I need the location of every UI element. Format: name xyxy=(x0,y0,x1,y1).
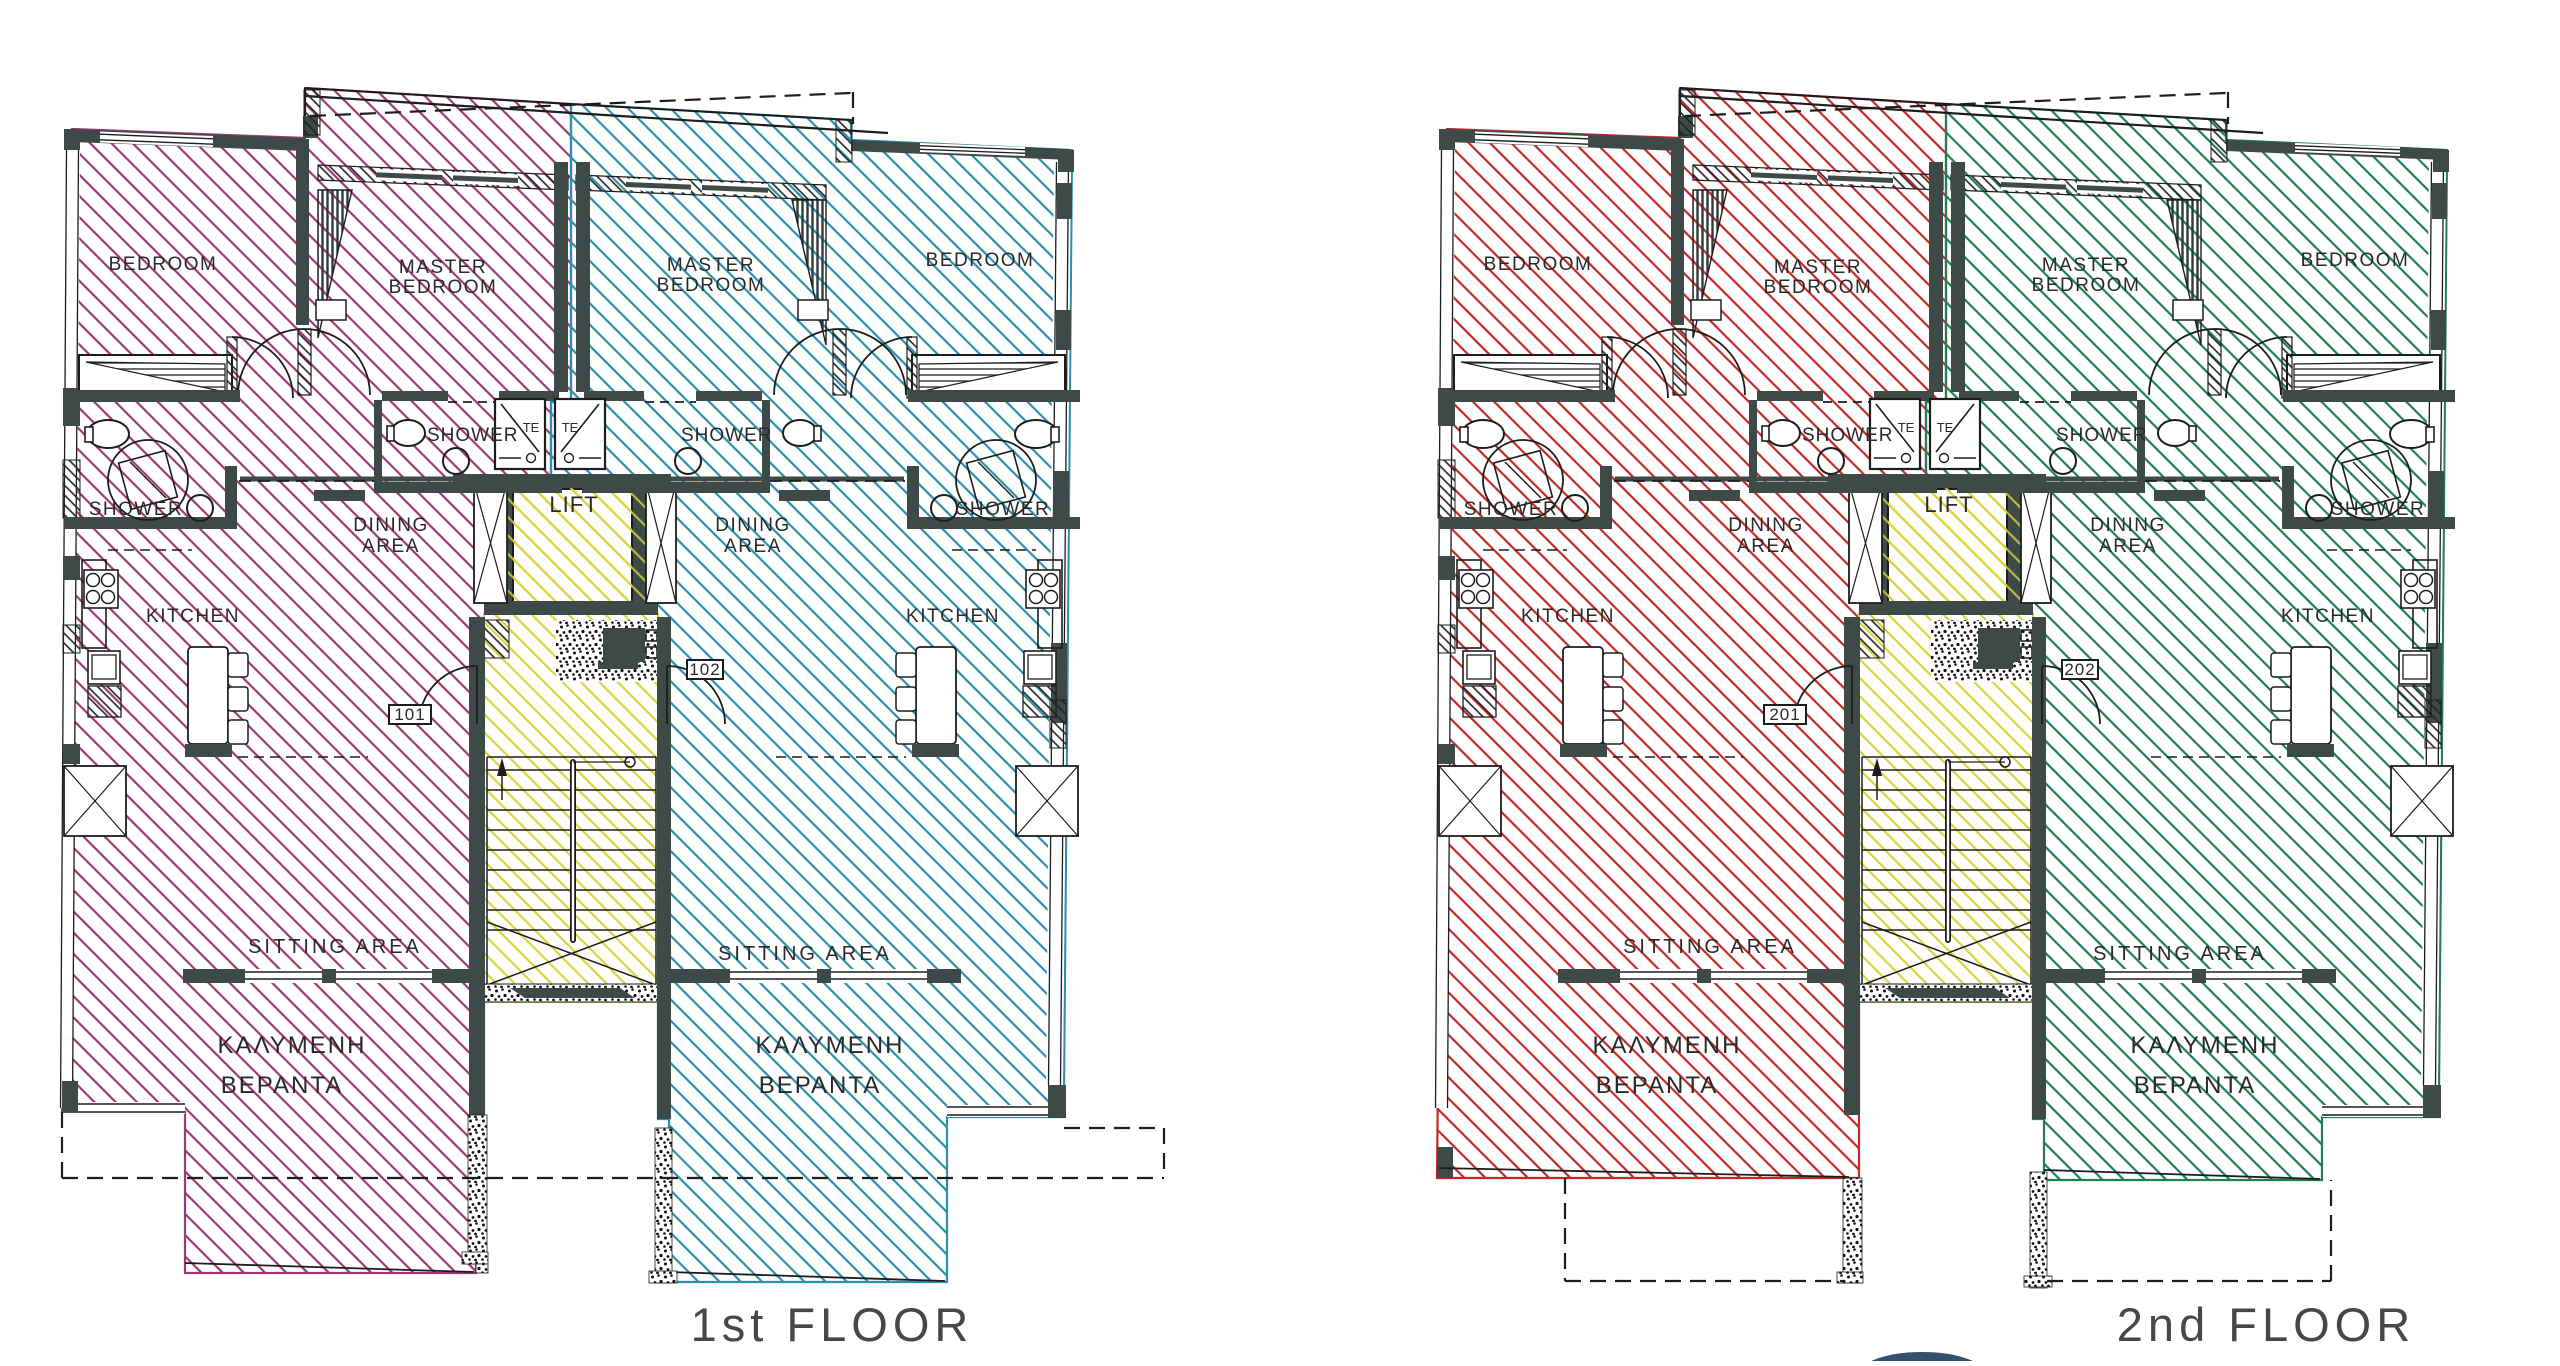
svg-text:1st FLOOR: 1st FLOOR xyxy=(691,1298,974,1351)
svg-text:ΚΑΛΥΜΕΝΗ: ΚΑΛΥΜΕΝΗ xyxy=(756,1032,905,1059)
svg-text:SITTING AREA: SITTING AREA xyxy=(1623,936,1797,958)
svg-text:201: 201 xyxy=(1769,705,1800,724)
svg-text:KITCHEN: KITCHEN xyxy=(146,606,240,627)
svg-text:SHOWER: SHOWER xyxy=(2056,425,2148,446)
svg-text:LIFT: LIFT xyxy=(549,492,598,517)
svg-text:BEDROOM: BEDROOM xyxy=(109,254,218,275)
svg-text:SHOWER: SHOWER xyxy=(89,499,184,520)
svg-text:101: 101 xyxy=(394,705,425,724)
svg-text:202: 202 xyxy=(2064,660,2095,679)
svg-text:AREA: AREA xyxy=(1737,536,1795,557)
svg-text:AREA: AREA xyxy=(724,536,782,557)
svg-text:KITCHEN: KITCHEN xyxy=(1521,606,1615,627)
svg-text:BEDROOM: BEDROOM xyxy=(1764,277,1873,298)
svg-text:SHOWER: SHOWER xyxy=(681,425,773,446)
svg-text:DINING: DINING xyxy=(715,515,791,536)
svg-text:KITCHEN: KITCHEN xyxy=(906,606,1000,627)
svg-text:ΚΑΛΥΜΕΝΗ: ΚΑΛΥΜΕΝΗ xyxy=(218,1032,367,1059)
svg-text:AREA: AREA xyxy=(2099,536,2157,557)
svg-text:BEDROOM: BEDROOM xyxy=(1484,254,1593,275)
svg-text:MASTER: MASTER xyxy=(399,257,487,278)
svg-text:MASTER: MASTER xyxy=(1774,257,1862,278)
svg-text:BEDROOM: BEDROOM xyxy=(926,250,1035,271)
svg-text:KITCHEN: KITCHEN xyxy=(2281,606,2375,627)
svg-text:SHOWER: SHOWER xyxy=(1464,499,1559,520)
svg-text:TE: TE xyxy=(562,420,579,435)
svg-text:SHOWER: SHOWER xyxy=(427,425,519,446)
svg-text:SHOWER: SHOWER xyxy=(956,499,1051,520)
svg-text:ΒΕΡΑΝΤΑ: ΒΕΡΑΝΤΑ xyxy=(2134,1072,2256,1099)
svg-text:MASTER: MASTER xyxy=(667,255,755,276)
svg-text:ΒΕΡΑΝΤΑ: ΒΕΡΑΝΤΑ xyxy=(759,1072,881,1099)
svg-text:BEDROOM: BEDROOM xyxy=(389,277,498,298)
svg-text:102: 102 xyxy=(689,660,720,679)
svg-text:TE: TE xyxy=(523,420,540,435)
svg-text:BEDROOM: BEDROOM xyxy=(2032,275,2141,296)
svg-text:ΒΕΡΑΝΤΑ: ΒΕΡΑΝΤΑ xyxy=(221,1072,343,1099)
svg-text:SITTING AREA: SITTING AREA xyxy=(2093,943,2267,965)
svg-text:ΒΕΡΑΝΤΑ: ΒΕΡΑΝΤΑ xyxy=(1596,1072,1718,1099)
svg-text:ΚΑΛΥΜΕΝΗ: ΚΑΛΥΜΕΝΗ xyxy=(2131,1032,2280,1059)
svg-text:SITTING AREA: SITTING AREA xyxy=(248,936,422,958)
svg-text:DINING: DINING xyxy=(1728,515,1804,536)
svg-text:SHOWER: SHOWER xyxy=(1802,425,1894,446)
svg-text:ΚΑΛΥΜΕΝΗ: ΚΑΛΥΜΕΝΗ xyxy=(1593,1032,1742,1059)
svg-text:AREA: AREA xyxy=(362,536,420,557)
svg-text:BEDROOM: BEDROOM xyxy=(2301,250,2410,271)
svg-text:MASTER: MASTER xyxy=(2042,255,2130,276)
svg-text:BEDROOM: BEDROOM xyxy=(657,275,766,296)
svg-text:SHOWER: SHOWER xyxy=(2331,499,2426,520)
svg-text:SITTING AREA: SITTING AREA xyxy=(718,943,892,965)
svg-text:DINING: DINING xyxy=(353,515,429,536)
svg-text:DINING: DINING xyxy=(2090,515,2166,536)
svg-text:2nd FLOOR: 2nd FLOOR xyxy=(2117,1298,2415,1351)
